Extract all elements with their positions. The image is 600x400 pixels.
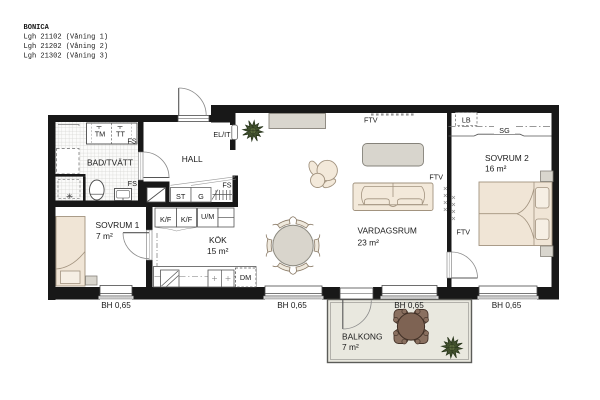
svg-text:7 m²: 7 m² — [342, 342, 359, 352]
svg-text:K/F: K/F — [160, 215, 172, 224]
svg-text:ST: ST — [176, 192, 186, 201]
svg-text:16 m²: 16 m² — [485, 163, 507, 173]
svg-text:7 m²: 7 m² — [96, 231, 113, 241]
svg-text:DM: DM — [240, 273, 251, 282]
svg-text:LB: LB — [462, 115, 471, 124]
svg-text:Lgh 21202 (Våning 2): Lgh 21202 (Våning 2) — [24, 42, 109, 51]
svg-text:Lgh 21302 (Våning 3): Lgh 21302 (Våning 3) — [24, 51, 109, 60]
svg-text:U/M: U/M — [201, 212, 214, 221]
svg-text:BONICA: BONICA — [24, 24, 50, 32]
svg-text:G: G — [198, 192, 204, 201]
svg-text:FTV: FTV — [364, 116, 378, 125]
svg-text:VARDAGSRUM: VARDAGSRUM — [358, 226, 417, 236]
svg-text:HALL: HALL — [182, 154, 203, 164]
svg-text:TT: TT — [116, 130, 125, 139]
svg-text:SG: SG — [499, 126, 510, 135]
svg-text:Lgh 21102 (Våning 1): Lgh 21102 (Våning 1) — [24, 32, 109, 41]
svg-text:TM: TM — [95, 130, 106, 139]
svg-text:BAD/TVÄTT: BAD/TVÄTT — [87, 158, 133, 168]
svg-text:SOVRUM 1: SOVRUM 1 — [96, 220, 140, 230]
svg-text:EL/IT: EL/IT — [213, 130, 231, 139]
svg-text:KÖK: KÖK — [209, 235, 227, 245]
svg-text:BALKONG: BALKONG — [342, 331, 383, 341]
svg-text:BH 0,65: BH 0,65 — [492, 301, 522, 310]
svg-text:FTV: FTV — [457, 228, 471, 237]
svg-text:23 m²: 23 m² — [358, 237, 380, 247]
svg-text:K/F: K/F — [181, 215, 193, 224]
svg-text:BH 0,65: BH 0,65 — [277, 301, 307, 310]
svg-text:SOVRUM 2: SOVRUM 2 — [485, 153, 529, 163]
svg-text:FTV: FTV — [429, 173, 443, 182]
svg-text:FS: FS — [127, 137, 136, 146]
svg-text:BH 0,65: BH 0,65 — [394, 301, 424, 310]
svg-text:FS: FS — [128, 179, 137, 188]
svg-text:15 m²: 15 m² — [207, 246, 229, 256]
svg-text:BH 0,65: BH 0,65 — [101, 301, 131, 310]
svg-text:FS: FS — [222, 181, 231, 190]
